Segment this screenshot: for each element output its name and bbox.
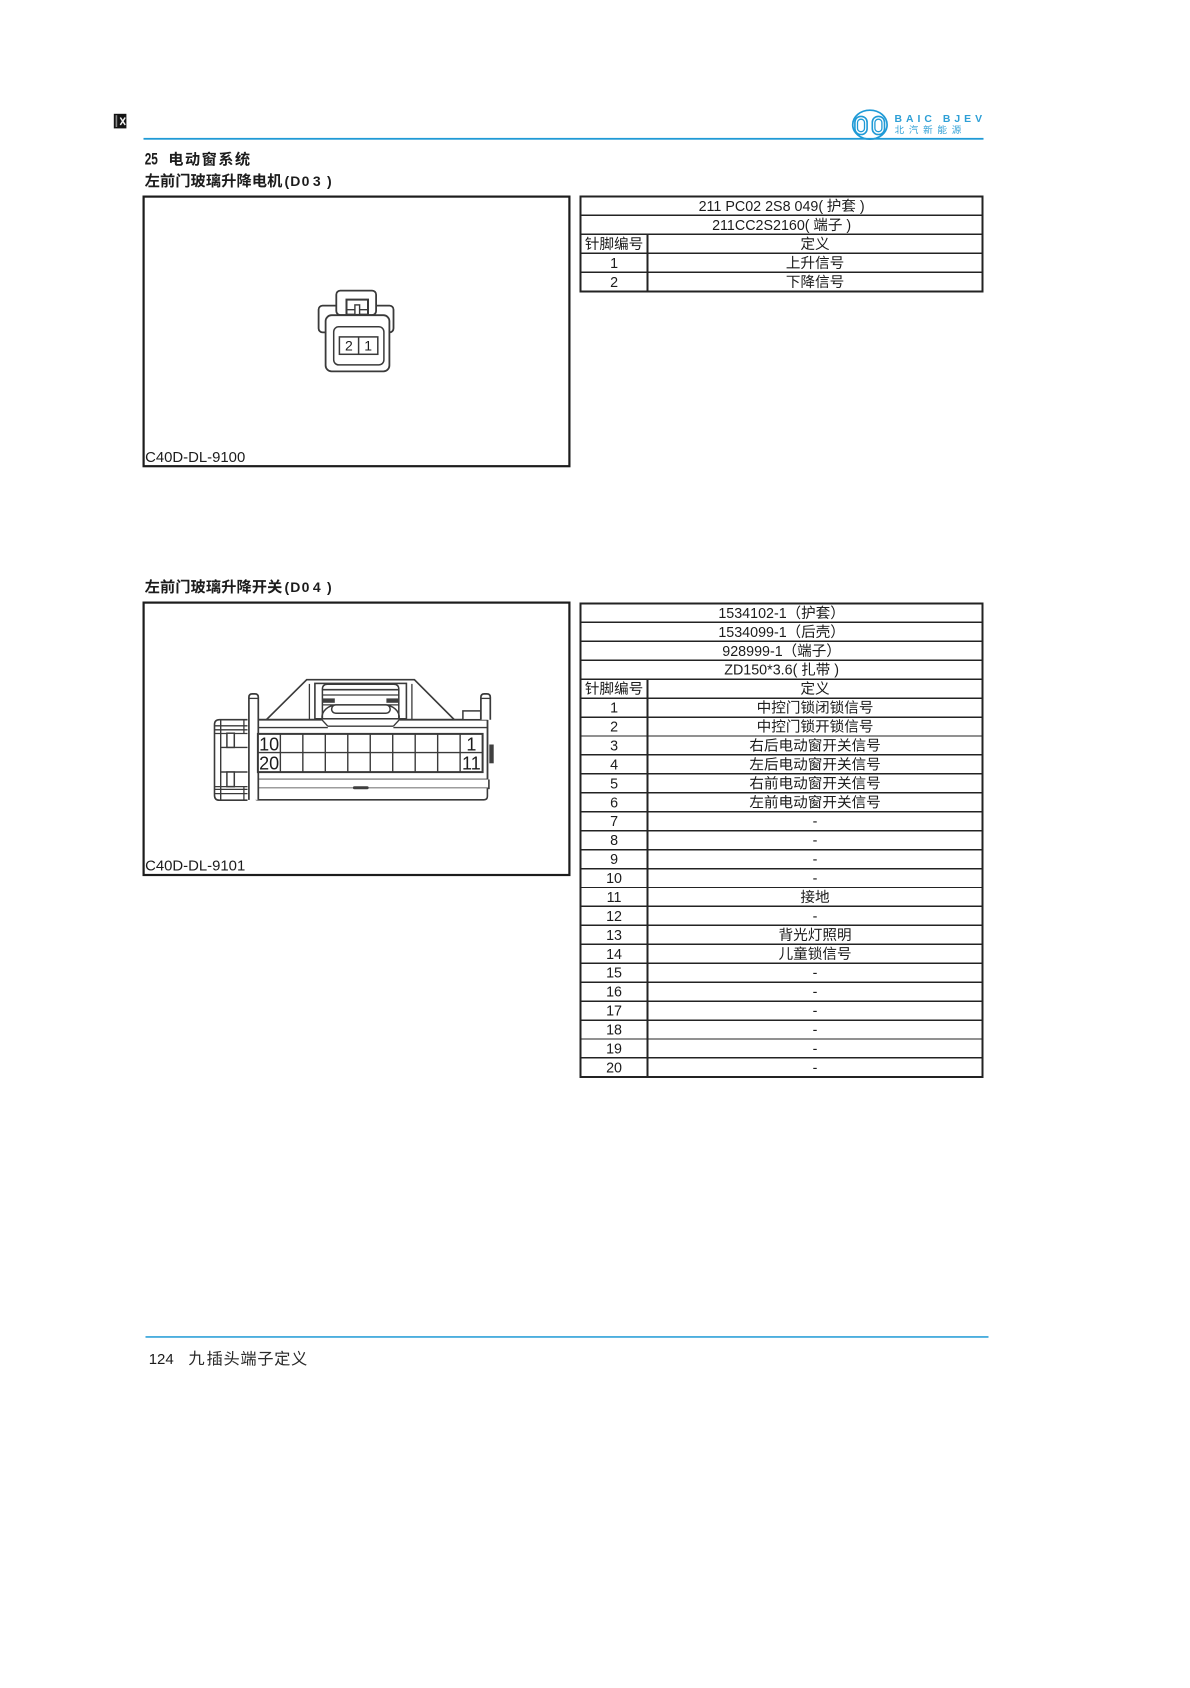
svg-text:-: - — [813, 1041, 818, 1057]
svg-text:ZD150*3.6(: ZD150*3.6( — [724, 663, 801, 679]
svg-text:1: 1 — [610, 256, 618, 272]
svg-text:124: 124 — [149, 1351, 174, 1368]
svg-text:-: - — [813, 852, 818, 868]
svg-text:-: - — [813, 985, 818, 1001]
svg-text:13: 13 — [606, 928, 622, 944]
svg-text:928999-1: 928999-1 — [722, 644, 782, 660]
svg-text:-: - — [813, 966, 818, 982]
svg-text:2: 2 — [345, 337, 353, 353]
svg-text:11: 11 — [462, 754, 481, 774]
svg-text:3: 3 — [610, 738, 618, 754]
svg-text:20: 20 — [606, 1060, 622, 1076]
svg-text:12: 12 — [606, 909, 622, 925]
svg-text:10: 10 — [606, 871, 622, 887]
svg-text:-: - — [813, 1004, 818, 1020]
svg-text:14: 14 — [606, 947, 622, 963]
svg-text:15: 15 — [606, 966, 622, 982]
svg-text:17: 17 — [606, 1004, 622, 1020]
svg-text:-: - — [813, 1023, 818, 1039]
svg-text:7: 7 — [610, 814, 618, 830]
svg-text:): ) — [830, 663, 839, 679]
svg-text:1534102-1: 1534102-1 — [718, 606, 786, 622]
svg-text:): ) — [856, 199, 865, 215]
svg-text:10: 10 — [259, 734, 279, 754]
svg-text:1: 1 — [364, 337, 372, 353]
svg-text:25: 25 — [145, 151, 158, 169]
svg-text:11: 11 — [607, 890, 622, 906]
svg-text:1: 1 — [610, 701, 618, 717]
svg-text:19: 19 — [606, 1041, 622, 1057]
svg-text:-: - — [813, 814, 818, 830]
svg-text:8: 8 — [610, 833, 618, 849]
svg-text:2: 2 — [610, 720, 618, 736]
svg-text:-: - — [813, 833, 818, 849]
svg-text:18: 18 — [606, 1023, 622, 1039]
svg-text:BAIC BJEV: BAIC BJEV — [895, 114, 983, 125]
svg-text:-: - — [813, 909, 818, 925]
svg-text:1534099-1: 1534099-1 — [718, 625, 786, 641]
svg-text:6: 6 — [610, 795, 618, 811]
svg-text:2: 2 — [610, 275, 618, 291]
svg-text:16: 16 — [606, 985, 622, 1001]
svg-text:C40D-DL-9101: C40D-DL-9101 — [145, 858, 245, 874]
svg-text:-: - — [813, 871, 818, 887]
svg-text:): ) — [842, 218, 851, 234]
svg-text:20: 20 — [259, 754, 279, 774]
svg-text:-: - — [813, 1060, 818, 1076]
svg-text:4: 4 — [610, 757, 618, 773]
svg-text:211 PC02 2S8 049(: 211 PC02 2S8 049( — [699, 199, 828, 215]
svg-text:9: 9 — [610, 852, 618, 868]
svg-text:C40D-DL-9100: C40D-DL-9100 — [145, 450, 245, 466]
svg-text:5: 5 — [610, 776, 618, 792]
svg-text:1: 1 — [466, 734, 476, 754]
svg-text:211CC2S2160(: 211CC2S2160( — [712, 218, 813, 234]
